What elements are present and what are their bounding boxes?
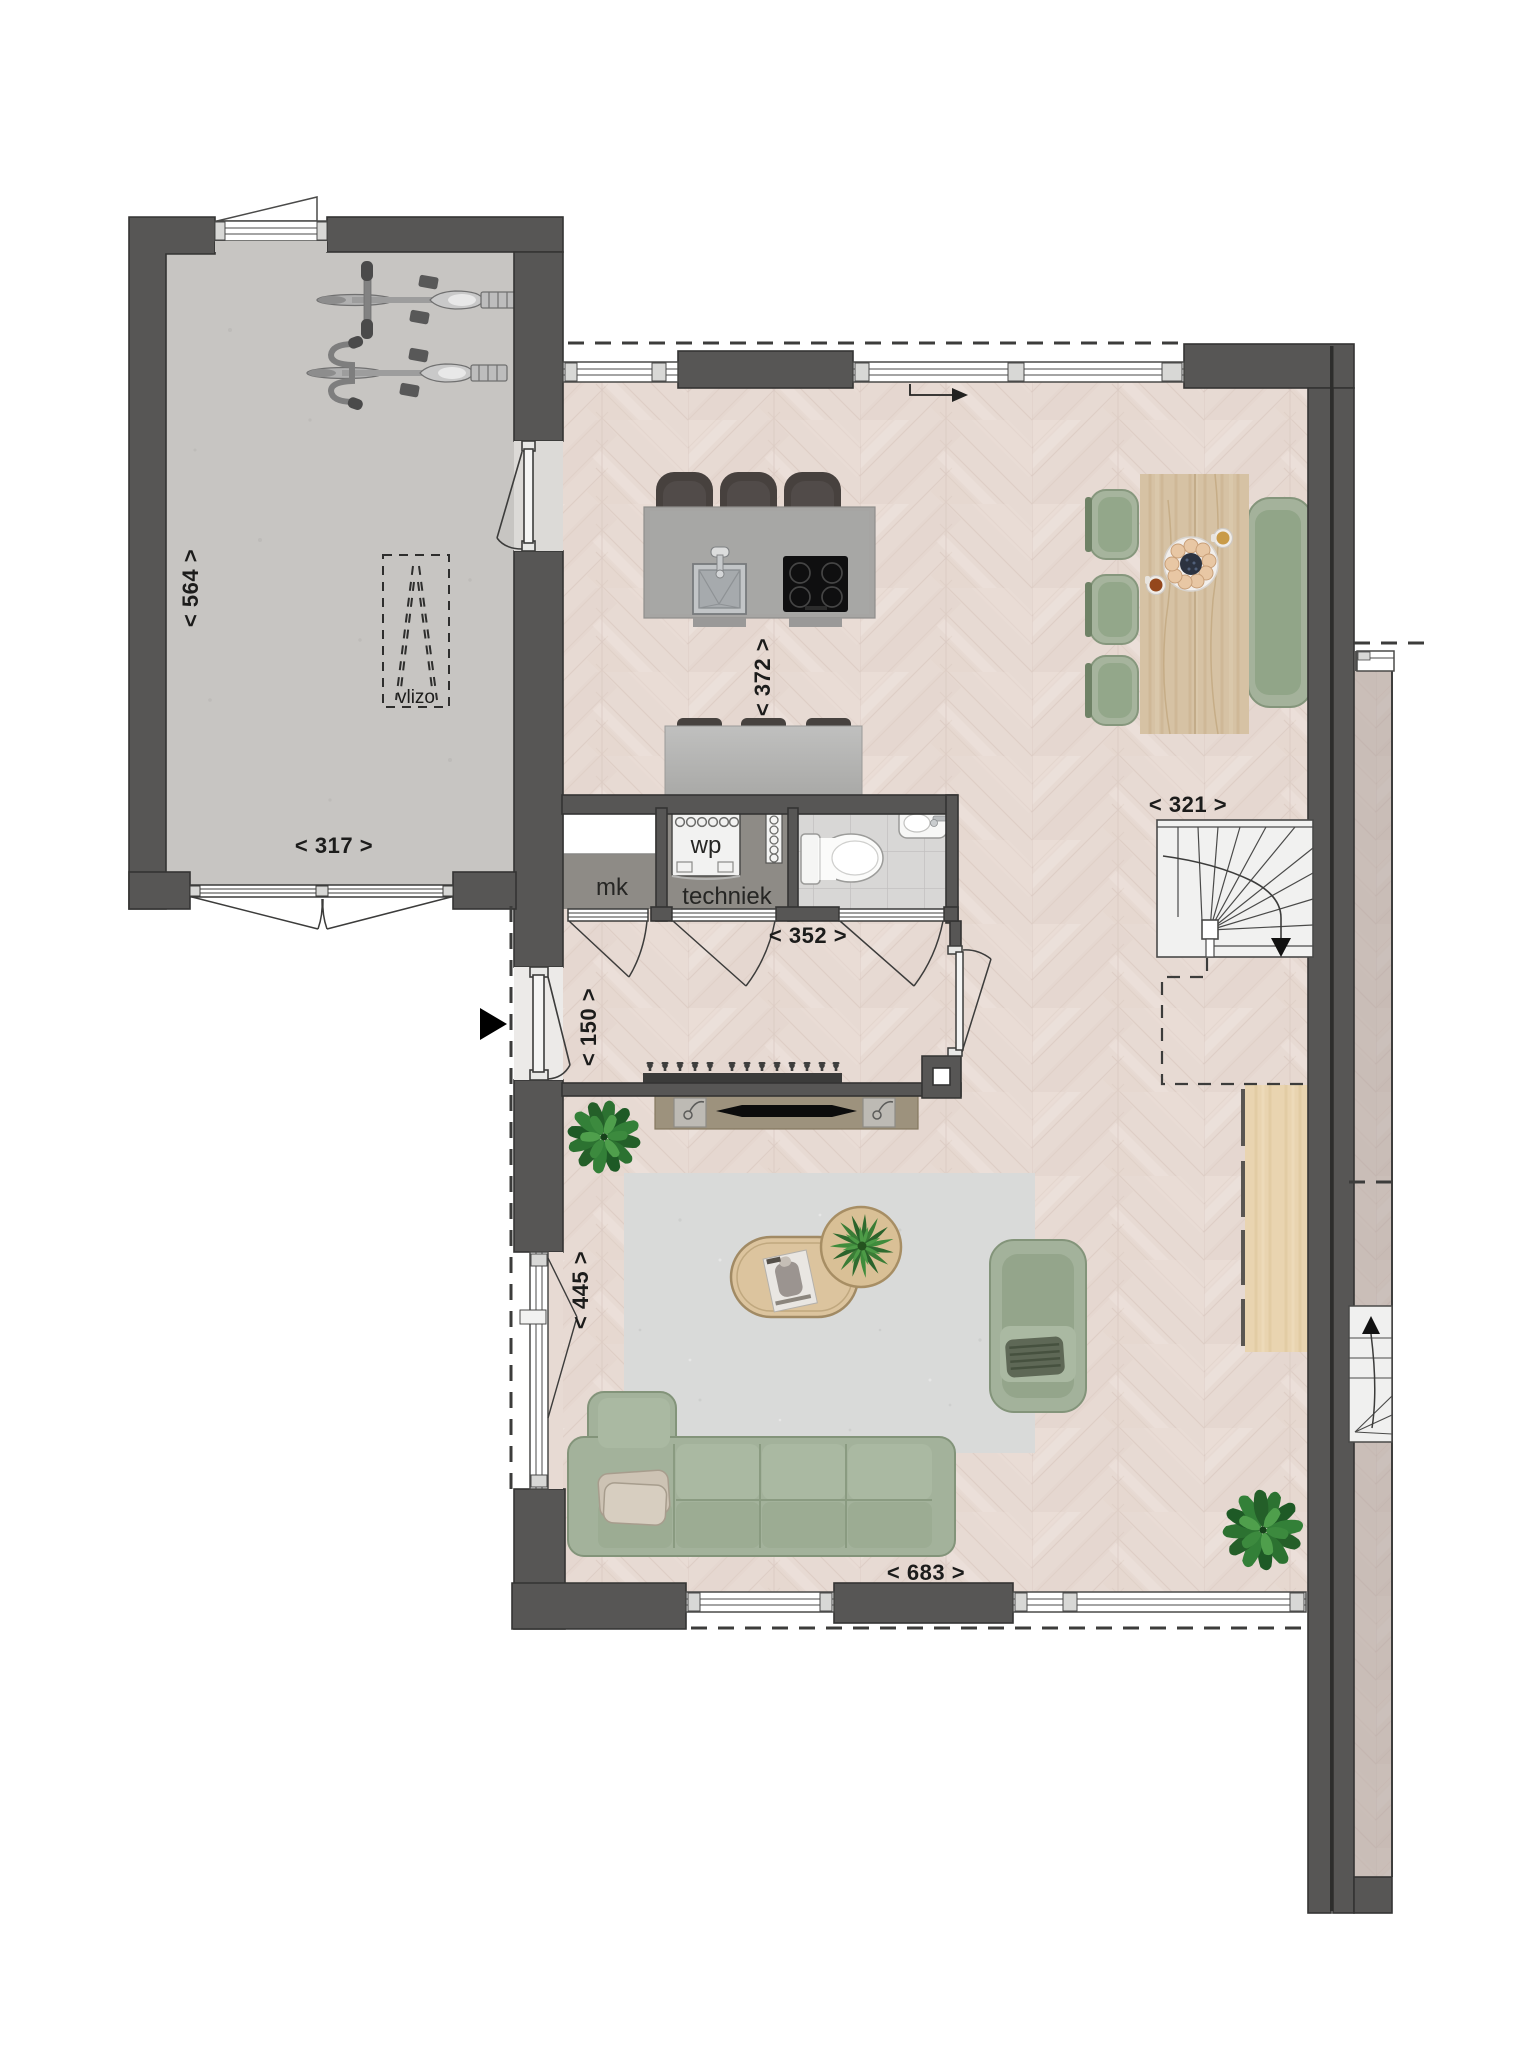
svg-text:< 317 >: < 317 > [295, 833, 373, 858]
svg-text:techniek: techniek [682, 883, 772, 910]
svg-text:< 352 >: < 352 > [769, 923, 847, 948]
svg-text:< 150 >: < 150 > [576, 988, 601, 1066]
svg-text:wp: wp [690, 832, 722, 859]
svg-text:< 445 >: < 445 > [568, 1251, 593, 1329]
svg-text:vlizo: vlizo [397, 687, 435, 708]
svg-text:mk: mk [596, 874, 629, 901]
svg-text:< 564 >: < 564 > [178, 549, 203, 627]
svg-text:< 683 >: < 683 > [887, 1560, 965, 1585]
svg-text:< 372 >: < 372 > [750, 638, 775, 716]
svg-text:< 321 >: < 321 > [1149, 792, 1227, 817]
